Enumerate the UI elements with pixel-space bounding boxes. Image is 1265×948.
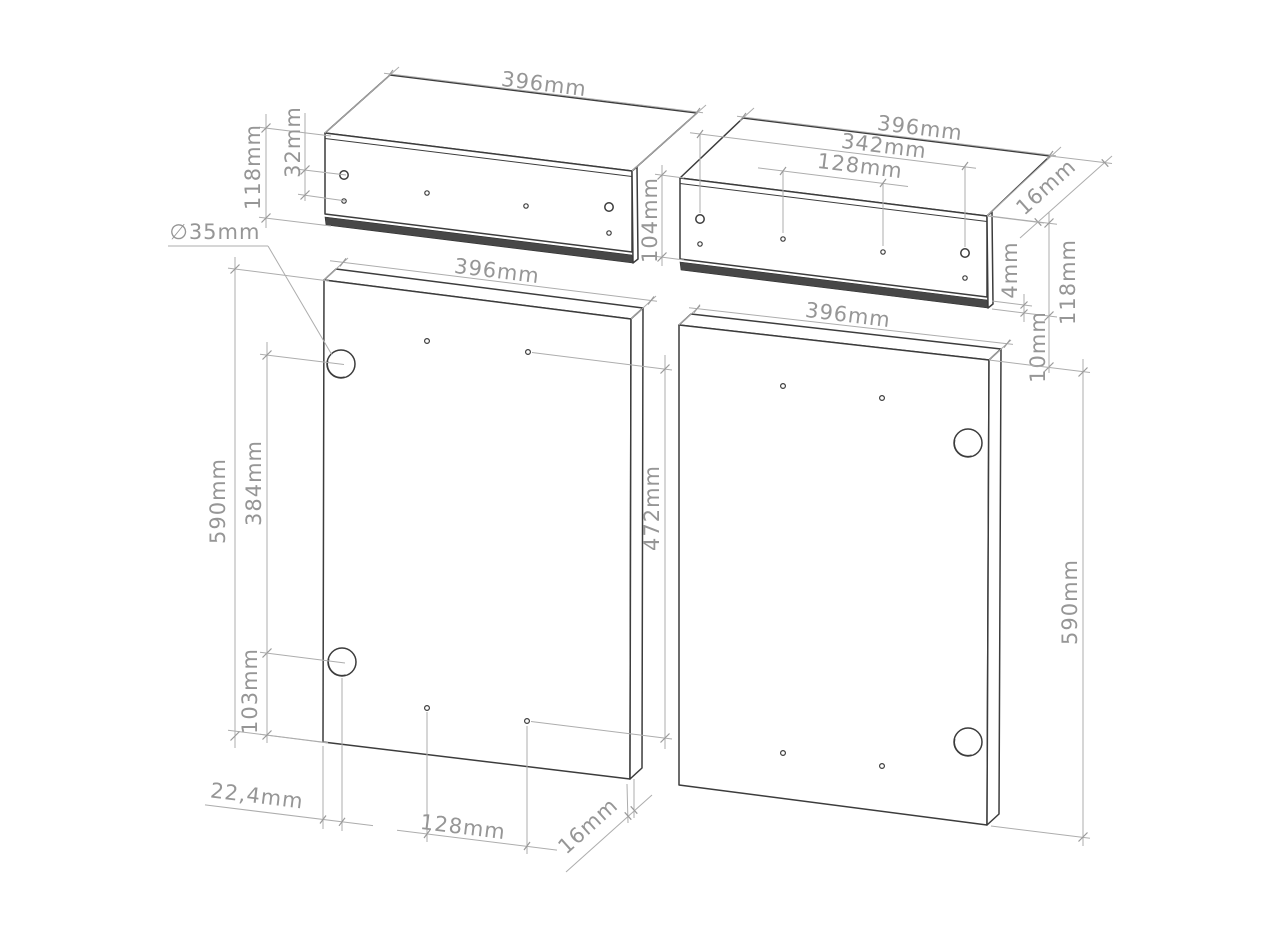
dim-label-p4-height: 590mm bbox=[1058, 559, 1082, 645]
dim-p2-gap-below: 10mm bbox=[1026, 311, 1054, 383]
panel-front-face bbox=[679, 325, 989, 825]
pilot-hole bbox=[963, 276, 967, 280]
dim-hinge-diameter: ∅35mm bbox=[168, 220, 332, 355]
dim-label-p3-thickness: 16mm bbox=[553, 793, 622, 859]
right-edge-sliver bbox=[987, 212, 993, 308]
dim-p2-groove: 4mm bbox=[992, 241, 1057, 322]
pilot-hole bbox=[881, 250, 885, 254]
dim-label-p2-height: 118mm bbox=[1056, 239, 1080, 325]
panel-front-face bbox=[323, 280, 631, 779]
dim-label-p3-right-span: 472mm bbox=[640, 465, 664, 551]
dim-label-hinge-diameter: ∅35mm bbox=[170, 220, 261, 244]
dim-label-p1-height: 118mm bbox=[241, 124, 265, 210]
pilot-hole bbox=[880, 764, 885, 769]
mount-hole bbox=[605, 203, 613, 211]
pilot-hole bbox=[425, 706, 430, 711]
dim-p3-thickness: 16mm bbox=[553, 779, 652, 872]
dim-label-p3-hinge-edge: 22,4mm bbox=[209, 778, 305, 813]
technical-drawing-page: 396mm 118mm 32mm ∅35mm 396mm 342mm 128mm bbox=[0, 0, 1265, 948]
dim-label-p2-gap-below: 10mm bbox=[1026, 311, 1050, 383]
dim-label-p2-face-height: 104mm bbox=[638, 177, 662, 263]
leader-line bbox=[990, 216, 1057, 224]
dim-p4-height: 590mm bbox=[989, 359, 1090, 846]
dim-label-p1-hole-offset: 32mm bbox=[281, 106, 305, 178]
leader-line bbox=[268, 246, 332, 355]
right-edge-sliver bbox=[987, 349, 1001, 825]
pilot-hole bbox=[880, 396, 885, 401]
dim-label-p3-hinge-pitch: 384mm bbox=[242, 440, 266, 526]
dim-p3-hinge-bottom: 103mm bbox=[238, 648, 328, 743]
dim-label-p3-bottom-pitch: 128mm bbox=[419, 810, 507, 844]
mount-hole bbox=[696, 215, 704, 223]
pilot-hole bbox=[525, 719, 530, 724]
dim-label-p2-groove: 4mm bbox=[998, 241, 1022, 298]
pilot-hole bbox=[425, 191, 429, 195]
dim-label-p3-hinge-bottom: 103mm bbox=[238, 648, 262, 734]
panel-door-right bbox=[679, 314, 1001, 825]
pilot-hole bbox=[425, 339, 430, 344]
dim-p2-face-height: 104mm bbox=[638, 165, 684, 266]
dim-label-p4-width: 396mm bbox=[804, 298, 892, 332]
pilot-hole bbox=[607, 231, 611, 235]
panel-door-left bbox=[323, 269, 643, 779]
leader-line bbox=[260, 734, 328, 743]
pilot-hole bbox=[781, 751, 786, 756]
pilot-hole bbox=[524, 204, 528, 208]
pilot-hole bbox=[698, 242, 702, 246]
furniture-dimension-drawing: 396mm 118mm 32mm ∅35mm 396mm 342mm 128mm bbox=[0, 0, 1265, 948]
mount-hole bbox=[961, 249, 969, 257]
dim-label-p3-width: 396mm bbox=[453, 254, 541, 288]
pilot-hole bbox=[781, 384, 786, 389]
dim-label-p3-height: 590mm bbox=[206, 458, 230, 544]
pilot-hole bbox=[526, 350, 531, 355]
pilot-hole bbox=[781, 237, 785, 241]
